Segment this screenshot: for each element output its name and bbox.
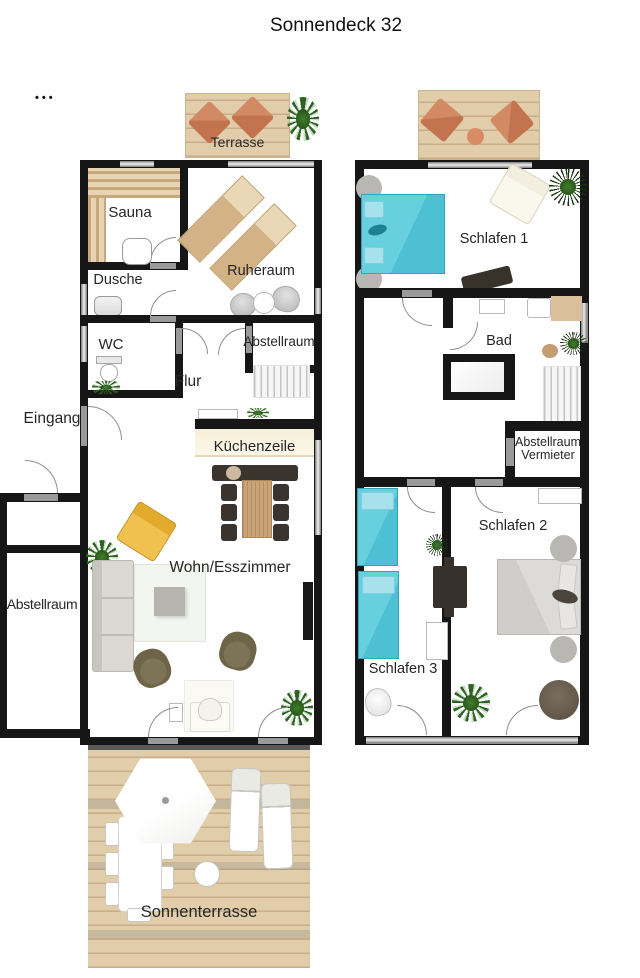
door-arc	[150, 237, 176, 263]
door-arc	[506, 705, 538, 735]
door-opening	[81, 406, 87, 446]
umbrella-pole-icon	[162, 797, 169, 804]
chair-icon	[362, 685, 394, 719]
wall	[80, 160, 88, 745]
toilet-icon	[100, 364, 118, 382]
dining-chair-icon	[273, 484, 289, 501]
room-label-kuechenzeile: Küchenzeile	[195, 438, 314, 455]
wall	[195, 419, 322, 429]
rug	[550, 535, 577, 562]
floor-plan-page: Sonnendeck 32 ••• Terrasse Sauna Ruherau…	[0, 0, 640, 978]
room-label-abstellraum-outside: Abstellraum	[1, 596, 83, 612]
wall	[0, 493, 7, 738]
room-label-ruheraum: Ruheraum	[219, 263, 303, 279]
door-opening	[258, 738, 288, 744]
dining-bench-icon	[212, 465, 298, 481]
sauna-heater-icon	[122, 238, 152, 265]
coffee-table-icon	[154, 587, 185, 616]
plant-icon	[287, 97, 319, 141]
overflow-dots-icon: •••	[35, 92, 56, 104]
plant-icon	[426, 534, 448, 556]
sofa-icon	[92, 560, 134, 672]
room-label-sauna: Sauna	[95, 204, 165, 221]
armchair-icon	[128, 644, 176, 693]
pillow-icon	[361, 492, 394, 510]
wardrobe-icon	[538, 488, 582, 504]
room-label-wohn-esszimmer: Wohn/Esszimmer	[152, 559, 308, 577]
door-opening	[475, 479, 503, 486]
dining-chair-icon	[273, 524, 289, 541]
plant-icon	[452, 684, 490, 722]
shower-icon	[94, 296, 122, 316]
room-label-wc: WC	[89, 336, 133, 353]
deck-shade	[88, 930, 310, 939]
shower-tray	[451, 362, 504, 392]
deck-chair-icon	[160, 866, 174, 890]
dining-table-icon	[242, 480, 272, 538]
balcony-pouf-icon	[467, 128, 484, 145]
dining-chair-icon	[273, 504, 289, 521]
door-arc	[407, 487, 435, 513]
wall	[505, 421, 589, 431]
room-label-schlafen1: Schlafen 1	[457, 231, 531, 247]
sun-lounger-icon	[261, 783, 294, 870]
door-arc	[475, 487, 503, 513]
door-arc	[150, 290, 176, 316]
wall	[355, 477, 589, 487]
plant-icon	[549, 168, 587, 206]
wall	[0, 545, 84, 553]
window	[315, 440, 321, 535]
door-arc	[182, 328, 208, 354]
door-opening	[407, 479, 435, 486]
sofa-cushion-line	[101, 597, 134, 599]
sofa-cushion-line	[101, 634, 134, 636]
desk-chair-icon	[444, 557, 454, 566]
window	[120, 161, 154, 167]
room-label-terrasse: Terrasse	[185, 134, 290, 150]
door-opening	[402, 290, 432, 297]
door-arc	[258, 707, 288, 737]
room-label-abstellraum-vermieter: Abstellraum Vermieter	[512, 436, 584, 462]
window	[228, 161, 314, 167]
room-label-flur: Flur	[164, 373, 212, 391]
room-label-dusche: Dusche	[88, 272, 148, 288]
armchair-icon	[489, 163, 552, 226]
door-arc	[148, 707, 178, 737]
dining-chair-icon	[221, 504, 237, 521]
room-label-bad: Bad	[477, 333, 521, 349]
door-opening	[24, 494, 58, 501]
window	[315, 288, 321, 314]
room-label-eingang: Eingang	[20, 410, 84, 428]
pillow-icon	[362, 576, 395, 594]
deck-chair-icon	[105, 852, 119, 876]
pillow-icon	[364, 201, 384, 218]
kitchen-sink-icon	[198, 409, 238, 419]
side-table-icon	[253, 292, 275, 314]
desk-icon	[433, 566, 467, 608]
sink-icon	[527, 298, 551, 318]
sun-lounger-icon	[229, 768, 262, 853]
page-title: Sonnendeck 32	[246, 15, 426, 37]
herbs-icon	[247, 408, 269, 418]
desk-chair-icon	[444, 608, 454, 617]
room-label-abstellraum: Abstellraum	[238, 334, 320, 349]
stairs-icon	[253, 365, 310, 398]
dining-chair-icon	[221, 484, 237, 501]
label-line: Vermieter	[512, 449, 584, 462]
room-label-sonnenterrasse: Sonnenterrasse	[88, 903, 310, 922]
bowl-icon	[226, 466, 241, 480]
pouf-icon	[539, 680, 579, 720]
window	[366, 737, 578, 744]
door-opening	[150, 316, 176, 322]
rug	[550, 636, 577, 663]
armchair-icon	[215, 628, 260, 674]
bath-mat-icon	[551, 296, 582, 321]
desk-chair-icon	[198, 698, 222, 721]
door-arc	[450, 322, 478, 350]
door-arc	[88, 406, 122, 440]
toilet-icon	[96, 356, 122, 364]
door-opening	[148, 738, 178, 744]
dresser-icon	[426, 622, 448, 660]
room-label-schlafen3: Schlafen 3	[366, 661, 440, 677]
stairs-icon	[543, 366, 581, 422]
tv-icon	[303, 582, 313, 640]
plant-icon	[560, 332, 587, 355]
wall	[80, 315, 322, 323]
deck-chair-icon	[105, 822, 119, 846]
herbs-icon	[92, 381, 120, 394]
bath-cabinet-icon	[479, 299, 505, 314]
door-arc	[25, 460, 58, 493]
sauna-bench-icon	[88, 168, 180, 198]
window	[81, 326, 87, 362]
wall	[0, 729, 90, 738]
pillow-icon	[364, 247, 384, 264]
wall	[180, 160, 188, 270]
room-label-schlafen2: Schlafen 2	[474, 518, 552, 534]
door-arc	[402, 298, 432, 326]
yellow-armchair-icon	[115, 500, 177, 562]
window	[81, 284, 87, 316]
door-opening	[150, 263, 176, 269]
stool-icon	[542, 344, 558, 358]
side-table-icon	[194, 861, 220, 887]
dining-chair-icon	[221, 524, 237, 541]
door-arc	[397, 705, 427, 735]
